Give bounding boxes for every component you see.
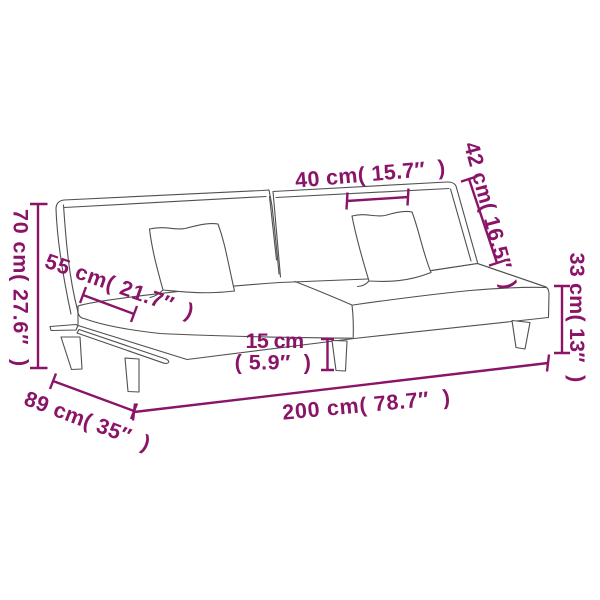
- svg-text:( 5.9″ ): ( 5.9″ ): [235, 351, 312, 375]
- svg-text:15 cm: 15 cm: [246, 329, 304, 353]
- svg-text:33 cm( 13″ ): 33 cm( 13″ ): [565, 253, 589, 383]
- svg-text:70 cm( 27.6″ ): 70 cm( 27.6″ ): [9, 209, 33, 367]
